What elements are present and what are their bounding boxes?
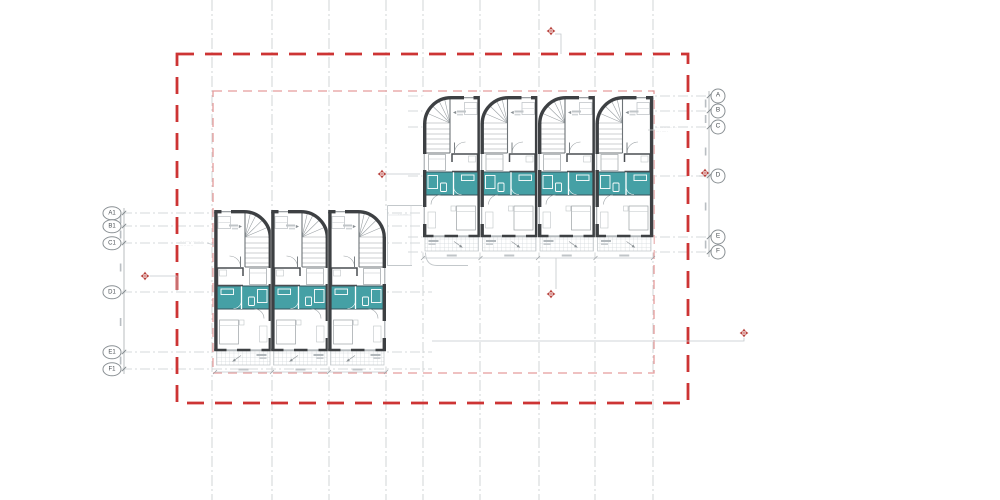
level-marker-icon [740, 329, 749, 338]
note-text: ···· ····· [656, 129, 668, 133]
upper-terrace-block-unit-2 [480, 96, 539, 253]
dimension-text-smudge [120, 216, 122, 224]
dimension-text-smudge [705, 241, 707, 249]
dimension-text-smudge [705, 148, 707, 156]
dimension-text-smudge [239, 369, 249, 371]
dimension-text-smudge [120, 357, 122, 365]
dimension-text-smudge [705, 115, 707, 123]
leader-line [555, 34, 561, 54]
floor-plan-screenshot: ABCDEFA1B1C1D1E1F1 ·· ······· ······ ·· … [0, 0, 1000, 500]
dimension-text-smudge [447, 255, 457, 257]
level-marker-icon [141, 272, 150, 281]
leader-line [150, 276, 177, 291]
upper-terrace-block-unit-4 [595, 96, 654, 253]
dwelling-units [214, 96, 654, 367]
dimension-text-smudge [120, 231, 122, 239]
dimension-text-smudge [504, 255, 514, 257]
upper-terrace-block-unit-3 [537, 96, 596, 253]
dimension-text-smudge [705, 100, 707, 108]
lower-terrace-block-unit-1 [214, 210, 273, 367]
dimension-text-smudge [619, 255, 629, 257]
dimension-text-smudge [562, 255, 572, 257]
leader-line [432, 338, 744, 341]
dimension-text-smudge [120, 264, 122, 272]
note-upper-block: ······ ········ ·· ···· ····· [656, 126, 677, 134]
plan-canvas [0, 0, 1000, 500]
note-lower-block: ·· ······· ······ ·· ····· ····· [180, 240, 203, 248]
note-text: ····· ····· [180, 243, 193, 247]
dimension-text-smudge [705, 203, 707, 211]
lower-terrace-block-unit-2 [271, 210, 330, 367]
dimension-text-smudge [353, 369, 363, 371]
level-marker-icon [547, 27, 556, 36]
level-marker-icon [547, 290, 556, 299]
upper-terrace-block-unit-1 [422, 96, 481, 253]
level-marker-icon [378, 170, 387, 179]
dimension-text-smudge [120, 318, 122, 326]
note-text: · ······· [398, 212, 409, 216]
dimension-text-smudge [296, 369, 306, 371]
lower-terrace-block-unit-3 [328, 210, 387, 367]
note-pathway: · ······· [398, 213, 409, 217]
